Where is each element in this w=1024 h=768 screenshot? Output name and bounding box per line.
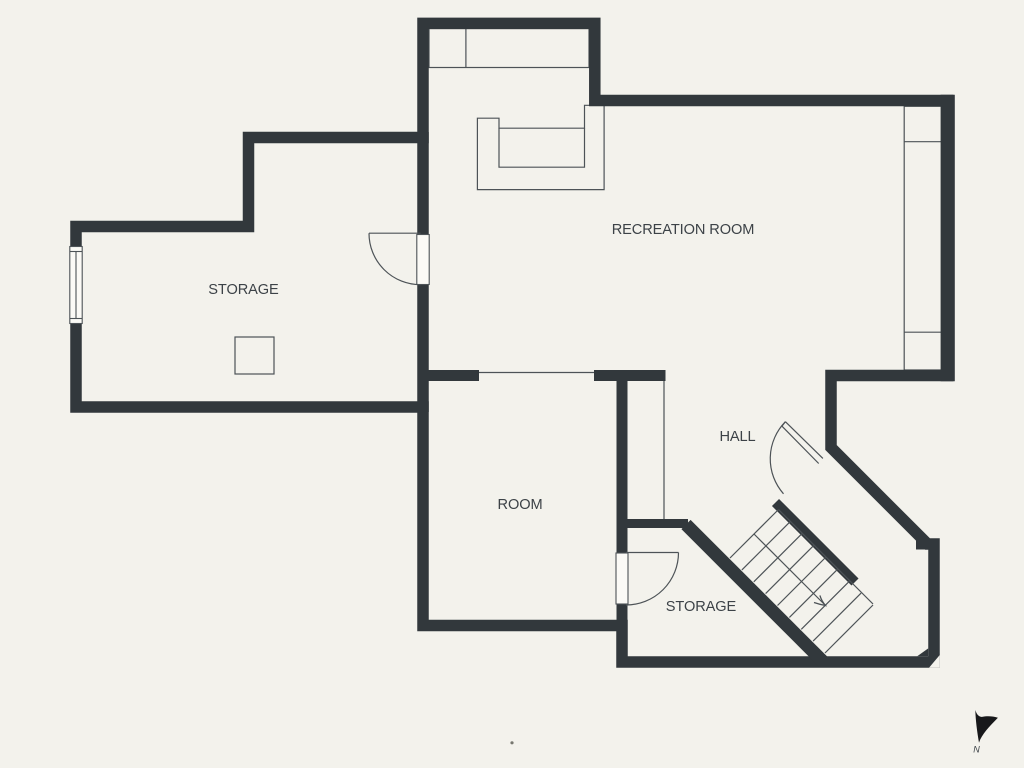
svg-text:ROOM: ROOM [498, 497, 543, 513]
svg-text:N: N [973, 745, 980, 755]
svg-text:RECREATION ROOM: RECREATION ROOM [612, 222, 755, 238]
svg-text:HALL: HALL [719, 429, 755, 445]
svg-text:STORAGE: STORAGE [208, 282, 279, 298]
svg-text:STORAGE: STORAGE [666, 599, 737, 615]
